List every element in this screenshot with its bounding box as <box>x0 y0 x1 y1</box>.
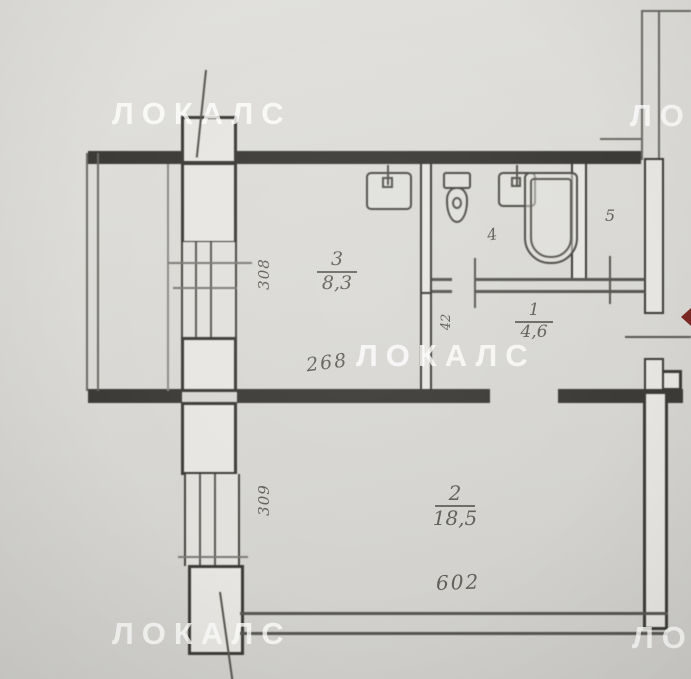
entrance-arrow-icon <box>681 308 691 326</box>
floor-plan-photo: 3 8,3 1 4,6 2 18,5 4 5 268 602 308 309 4… <box>0 0 691 679</box>
watermark-top-left: ЛОКАЛС <box>112 96 292 132</box>
watermark-center: ЛОКАЛС <box>356 338 536 374</box>
watermark-bottom-left: ЛОКАЛС <box>112 616 292 652</box>
watermark-top-right: ЛОКАЛС <box>630 98 691 134</box>
plan-marks <box>0 0 691 679</box>
watermark-bottom-right: ЛОКАЛС <box>632 620 691 656</box>
